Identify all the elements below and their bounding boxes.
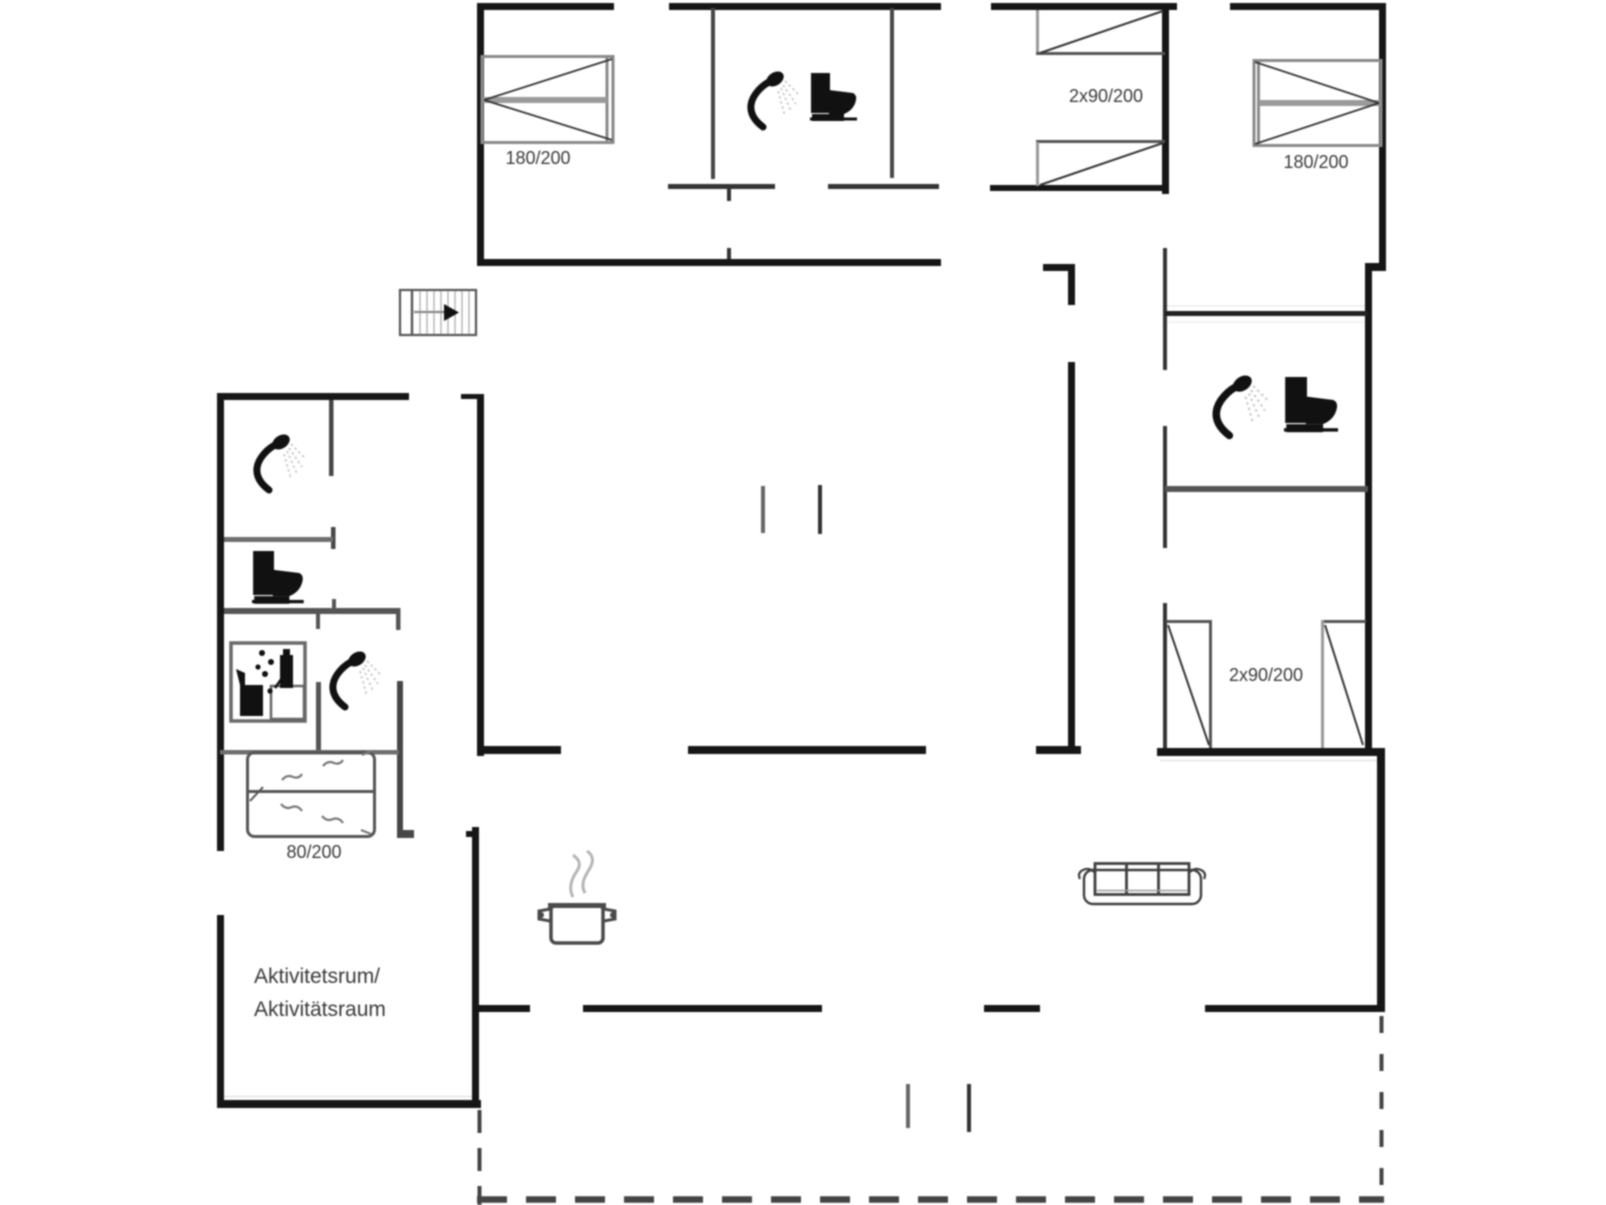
svg-text:Aktivitetsrum/: Aktivitetsrum/ xyxy=(254,965,380,988)
svg-text:180/200: 180/200 xyxy=(505,148,570,168)
svg-text:2x90/200: 2x90/200 xyxy=(1229,665,1303,685)
svg-text:Aktivitätsraum: Aktivitätsraum xyxy=(254,998,386,1021)
svg-text:80/200: 80/200 xyxy=(286,842,341,862)
svg-text:180/200: 180/200 xyxy=(1283,152,1348,172)
svg-text:2x90/200: 2x90/200 xyxy=(1069,86,1143,106)
